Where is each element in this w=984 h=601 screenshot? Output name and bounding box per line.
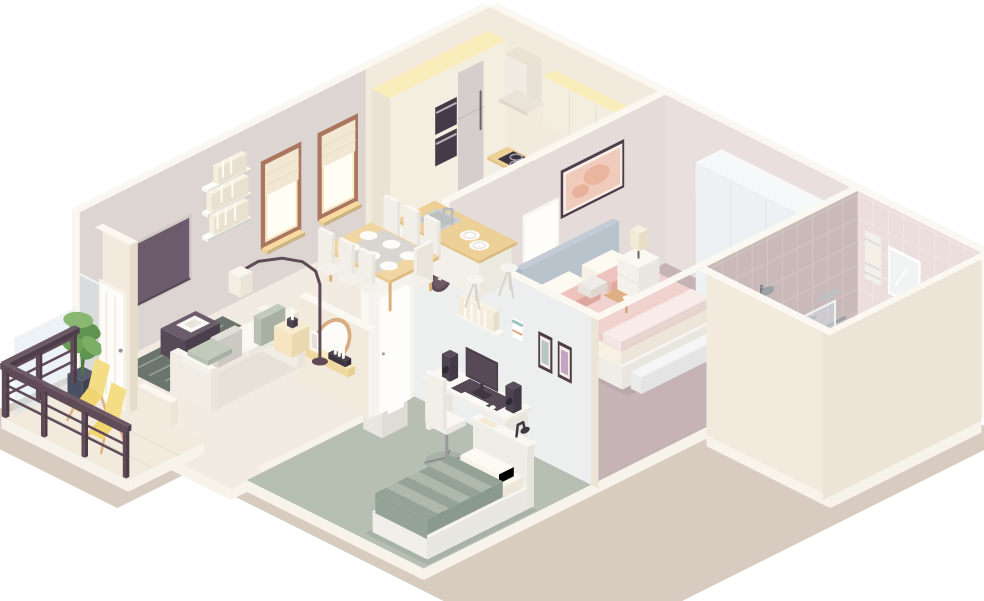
low-wall-end [171, 400, 178, 427]
wall-corner [823, 328, 831, 500]
entry-photo [312, 333, 317, 350]
stool-seat [466, 275, 484, 284]
office-door [380, 283, 410, 414]
mouse [490, 405, 496, 409]
apartment-isometric-illustration [0, 0, 984, 601]
door-handle [382, 352, 385, 355]
speaker [505, 381, 521, 413]
stool-seat [500, 263, 518, 272]
railing-post [41, 387, 48, 437]
railing-post [70, 333, 77, 384]
plate [360, 231, 378, 240]
railing-post [123, 428, 130, 478]
apartment-cutaway-stage [0, 0, 984, 601]
chair-back [425, 370, 447, 430]
railing-post [82, 408, 89, 458]
office-wall-end [591, 317, 599, 489]
arc-lamp-shade [229, 266, 253, 298]
picture-art-purple [561, 349, 568, 375]
wall-end [130, 241, 138, 413]
lamp-shade [630, 225, 647, 251]
speaker [442, 350, 458, 382]
railing-corner-post [2, 366, 10, 419]
plate [380, 261, 398, 270]
door-handle [119, 349, 123, 353]
clock-hand [438, 279, 440, 280]
picture-art-teal [542, 340, 549, 366]
plate [382, 240, 400, 249]
